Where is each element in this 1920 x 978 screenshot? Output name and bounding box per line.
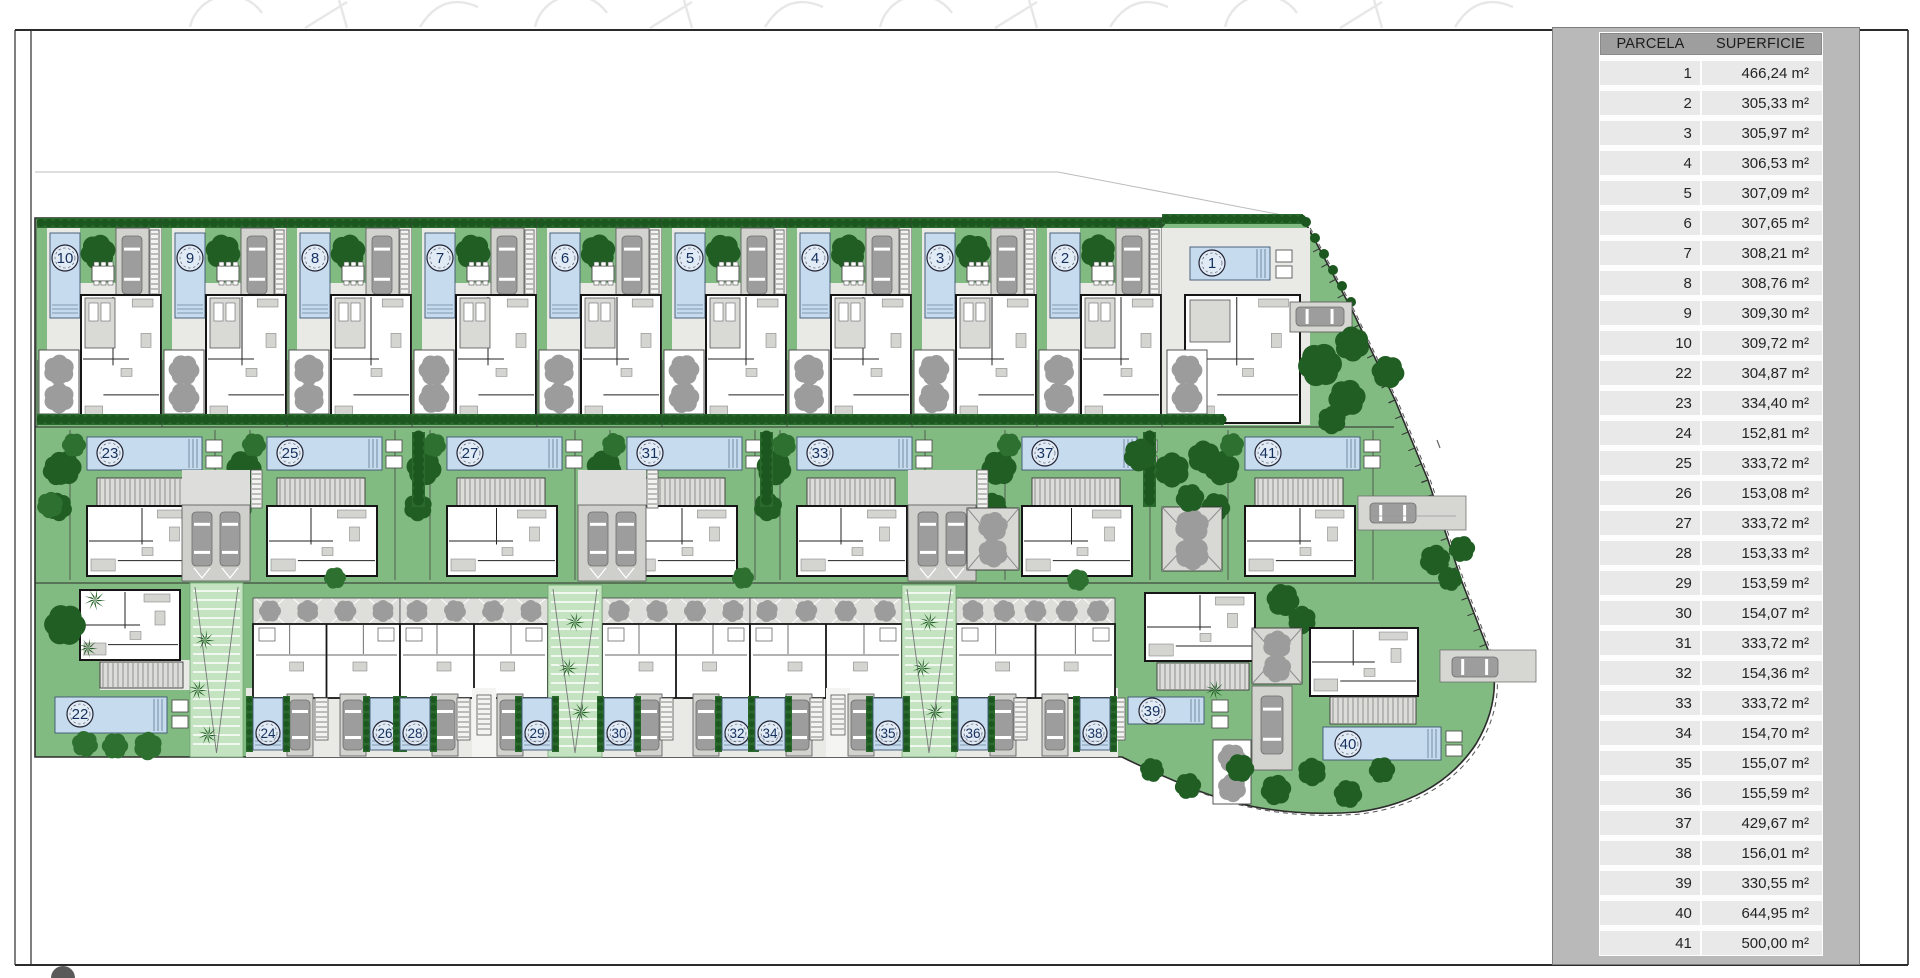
plot-38: 38 — [1073, 696, 1117, 752]
table-row: 27333,72 m² — [1600, 511, 1822, 535]
parcel-area: 644,95 m² — [1702, 901, 1822, 925]
parcel-number: 22 — [1600, 361, 1700, 385]
bottom-block-1 — [253, 598, 400, 698]
table-row: 39330,55 m² — [1600, 871, 1822, 895]
plot-30: 30 — [597, 696, 641, 752]
parcel-number: 2 — [1600, 91, 1700, 115]
parcel-area: 154,07 m² — [1702, 601, 1822, 625]
parcel-area: 154,36 m² — [1702, 661, 1822, 685]
table-row: 37429,67 m² — [1600, 811, 1822, 835]
table-row: 7308,21 m² — [1600, 241, 1822, 265]
table-row: 4306,53 m² — [1600, 151, 1822, 175]
svg-text:4: 4 — [811, 250, 819, 267]
table-row: 31333,72 m² — [1600, 631, 1822, 655]
parcel-area: 305,33 m² — [1702, 91, 1822, 115]
parcel-area: 155,59 m² — [1702, 781, 1822, 805]
svg-text:31: 31 — [642, 445, 659, 462]
svg-text:3: 3 — [936, 250, 944, 267]
parcel-area: 334,40 m² — [1702, 391, 1822, 415]
plot-3: 3 — [911, 218, 1040, 427]
plot-4: 4 — [786, 218, 915, 427]
parcel-area: 153,59 m² — [1702, 571, 1822, 595]
parcel-area: 304,87 m² — [1702, 361, 1822, 385]
parcel-area: 308,76 m² — [1702, 271, 1822, 295]
bottom-block-5 — [956, 598, 1115, 698]
plan-sheet: 1098765432123252731333741242628293032343… — [0, 0, 1920, 978]
parcel-number: 9 — [1600, 301, 1700, 325]
parcel-area: 500,00 m² — [1702, 931, 1822, 955]
plot-24: 24 — [246, 696, 290, 752]
parcel-number: 25 — [1600, 451, 1700, 475]
parcel-number: 40 — [1600, 901, 1700, 925]
table-row: 22304,87 m² — [1600, 361, 1822, 385]
plot-2: 2 — [1036, 218, 1165, 427]
plot-7: 7 — [411, 218, 540, 427]
svg-text:35: 35 — [880, 726, 895, 741]
svg-text:37: 37 — [1037, 445, 1054, 462]
parcel-area: 333,72 m² — [1702, 511, 1822, 535]
svg-text:39: 39 — [1144, 703, 1161, 720]
parcel-area: 307,65 m² — [1702, 211, 1822, 235]
parcel-number: 33 — [1600, 691, 1700, 715]
table-row: 33333,72 m² — [1600, 691, 1822, 715]
parcel-area: 305,97 m² — [1702, 121, 1822, 145]
parcel-area: 155,07 m² — [1702, 751, 1822, 775]
plot-28: 28 — [393, 696, 437, 752]
svg-text:1: 1 — [1208, 255, 1216, 272]
svg-text:8: 8 — [311, 250, 319, 267]
table-row: 28153,33 m² — [1600, 541, 1822, 565]
parcel-number: 38 — [1600, 841, 1700, 865]
parcel-number: 7 — [1600, 241, 1700, 265]
table-row: 1466,24 m² — [1600, 61, 1822, 85]
parcel-number: 30 — [1600, 601, 1700, 625]
svg-text:23: 23 — [102, 445, 119, 462]
plot-8: 8 — [286, 218, 415, 427]
table-row: 9309,30 m² — [1600, 301, 1822, 325]
table-row: 32154,36 m² — [1600, 661, 1822, 685]
parcel-number: 4 — [1600, 151, 1700, 175]
parcel-area: 333,72 m² — [1702, 451, 1822, 475]
table-row: 3305,97 m² — [1600, 121, 1822, 145]
bottom-block-3 — [602, 598, 750, 698]
table-row: 29153,59 m² — [1600, 571, 1822, 595]
svg-text:33: 33 — [812, 445, 829, 462]
parcel-area: 308,21 m² — [1702, 241, 1822, 265]
parcel-area: 309,30 m² — [1702, 301, 1822, 325]
svg-text:6: 6 — [561, 250, 569, 267]
table-row: 8308,76 m² — [1600, 271, 1822, 295]
table-row: 41500,00 m² — [1600, 931, 1822, 955]
parcel-area: 154,70 m² — [1702, 721, 1822, 745]
parcel-area: 307,09 m² — [1702, 181, 1822, 205]
table-row: 34154,70 m² — [1600, 721, 1822, 745]
parcel-number: 32 — [1600, 661, 1700, 685]
plot-5: 5 — [661, 218, 790, 427]
parcel-area: 152,81 m² — [1702, 421, 1822, 445]
parcel-table-panel: PARCELA SUPERFICIE 1466,24 m²2305,33 m²3… — [1552, 27, 1860, 965]
svg-text:10: 10 — [57, 250, 74, 267]
parcel-number: 5 — [1600, 181, 1700, 205]
parcel-area: 153,33 m² — [1702, 541, 1822, 565]
svg-text:32: 32 — [729, 726, 744, 741]
plot-10: 10 — [36, 218, 165, 427]
parcel-number: 28 — [1600, 541, 1700, 565]
table-row: 38156,01 m² — [1600, 841, 1822, 865]
table-row: 26153,08 m² — [1600, 481, 1822, 505]
parcel-number: 29 — [1600, 571, 1700, 595]
table-row: 25333,72 m² — [1600, 451, 1822, 475]
header-parcela: PARCELA — [1601, 34, 1700, 54]
plot-35: 35 — [866, 696, 910, 752]
plot-6: 6 — [536, 218, 665, 427]
plot-9: 9 — [161, 218, 290, 427]
table-row: 2305,33 m² — [1600, 91, 1822, 115]
table-row: 36155,59 m² — [1600, 781, 1822, 805]
svg-text:9: 9 — [186, 250, 194, 267]
table-row: 5307,09 m² — [1600, 181, 1822, 205]
parcel-table: PARCELA SUPERFICIE 1466,24 m²2305,33 m²3… — [1599, 32, 1823, 956]
parcel-number: 3 — [1600, 121, 1700, 145]
svg-text:2: 2 — [1061, 250, 1069, 267]
parcel-area: 309,72 m² — [1702, 331, 1822, 355]
svg-text:36: 36 — [965, 726, 980, 741]
parcel-number: 1 — [1600, 61, 1700, 85]
parcel-area: 429,67 m² — [1702, 811, 1822, 835]
parcel-number: 35 — [1600, 751, 1700, 775]
svg-text:5: 5 — [686, 250, 694, 267]
svg-text:41: 41 — [1260, 445, 1277, 462]
bottom-block-4 — [750, 598, 902, 698]
parcel-number: 27 — [1600, 511, 1700, 535]
plot-34: 34 — [748, 696, 792, 752]
table-row: 10309,72 m² — [1600, 331, 1822, 355]
svg-text:40: 40 — [1340, 736, 1357, 753]
table-row: 40644,95 m² — [1600, 901, 1822, 925]
table-row: 23334,40 m² — [1600, 391, 1822, 415]
table-row: 35155,07 m² — [1600, 751, 1822, 775]
parcel-number: 37 — [1600, 811, 1700, 835]
svg-text:34: 34 — [762, 726, 778, 741]
parcel-number: 24 — [1600, 421, 1700, 445]
svg-text:30: 30 — [611, 726, 626, 741]
svg-text:27: 27 — [462, 445, 479, 462]
svg-text:24: 24 — [260, 726, 276, 741]
parcel-number: 23 — [1600, 391, 1700, 415]
parcel-area: 333,72 m² — [1702, 631, 1822, 655]
parcel-number: 6 — [1600, 211, 1700, 235]
parcel-number: 36 — [1600, 781, 1700, 805]
svg-text:28: 28 — [407, 726, 422, 741]
table-row: 24152,81 m² — [1600, 421, 1822, 445]
svg-text:25: 25 — [282, 445, 299, 462]
parcel-number: 41 — [1600, 931, 1700, 955]
parcel-number: 26 — [1600, 481, 1700, 505]
parcel-number: 39 — [1600, 871, 1700, 895]
parcel-area: 153,08 m² — [1702, 481, 1822, 505]
parcel-area: 306,53 m² — [1702, 151, 1822, 175]
svg-text:38: 38 — [1087, 726, 1102, 741]
parcel-number: 10 — [1600, 331, 1700, 355]
parcel-area: 333,72 m² — [1702, 691, 1822, 715]
header-superficie: SUPERFICIE — [1700, 34, 1821, 54]
plot-36: 36 — [951, 696, 995, 752]
svg-text:26: 26 — [377, 726, 392, 741]
parcel-number: 8 — [1600, 271, 1700, 295]
svg-text:22: 22 — [72, 706, 89, 723]
bottom-block-2 — [400, 598, 548, 698]
plot-29: 29 — [515, 696, 559, 752]
parcel-table-header: PARCELA SUPERFICIE — [1600, 33, 1822, 55]
parcel-table-body: 1466,24 m²2305,33 m²3305,97 m²4306,53 m²… — [1600, 61, 1822, 955]
svg-text:29: 29 — [529, 726, 544, 741]
parcel-number: 31 — [1600, 631, 1700, 655]
table-row: 6307,65 m² — [1600, 211, 1822, 235]
parcel-area: 156,01 m² — [1702, 841, 1822, 865]
parcel-number: 34 — [1600, 721, 1700, 745]
svg-text:7: 7 — [436, 250, 444, 267]
table-row: 30154,07 m² — [1600, 601, 1822, 625]
parcel-area: 466,24 m² — [1702, 61, 1822, 85]
parcel-area: 330,55 m² — [1702, 871, 1822, 895]
